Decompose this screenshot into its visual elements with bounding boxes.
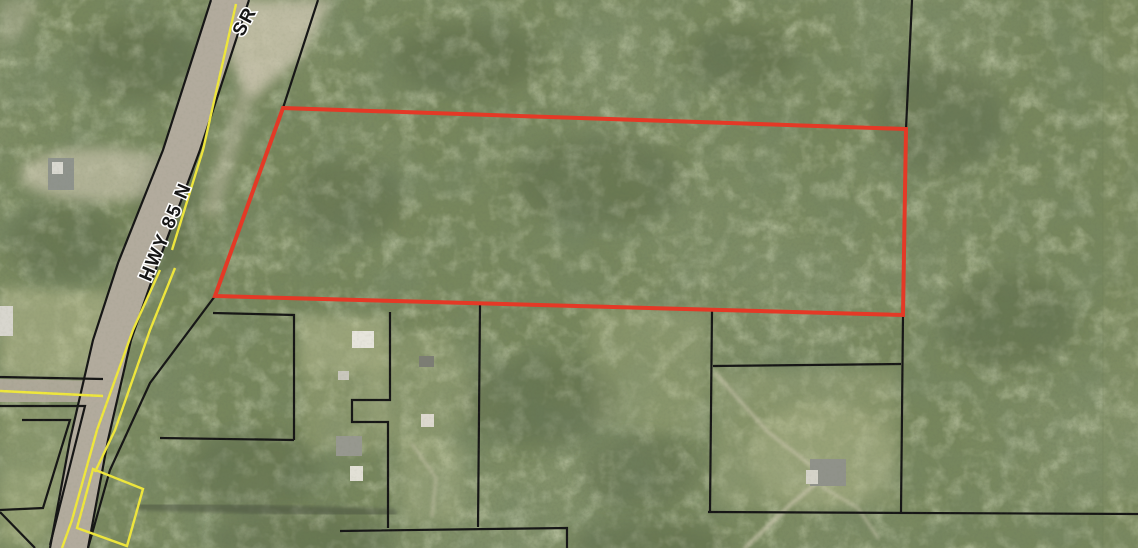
film-grain-overlay [0,0,1138,548]
aerial-parcel-map: HWY 85 N SR [0,0,1138,548]
map-canvas: HWY 85 N SR [0,0,1138,548]
